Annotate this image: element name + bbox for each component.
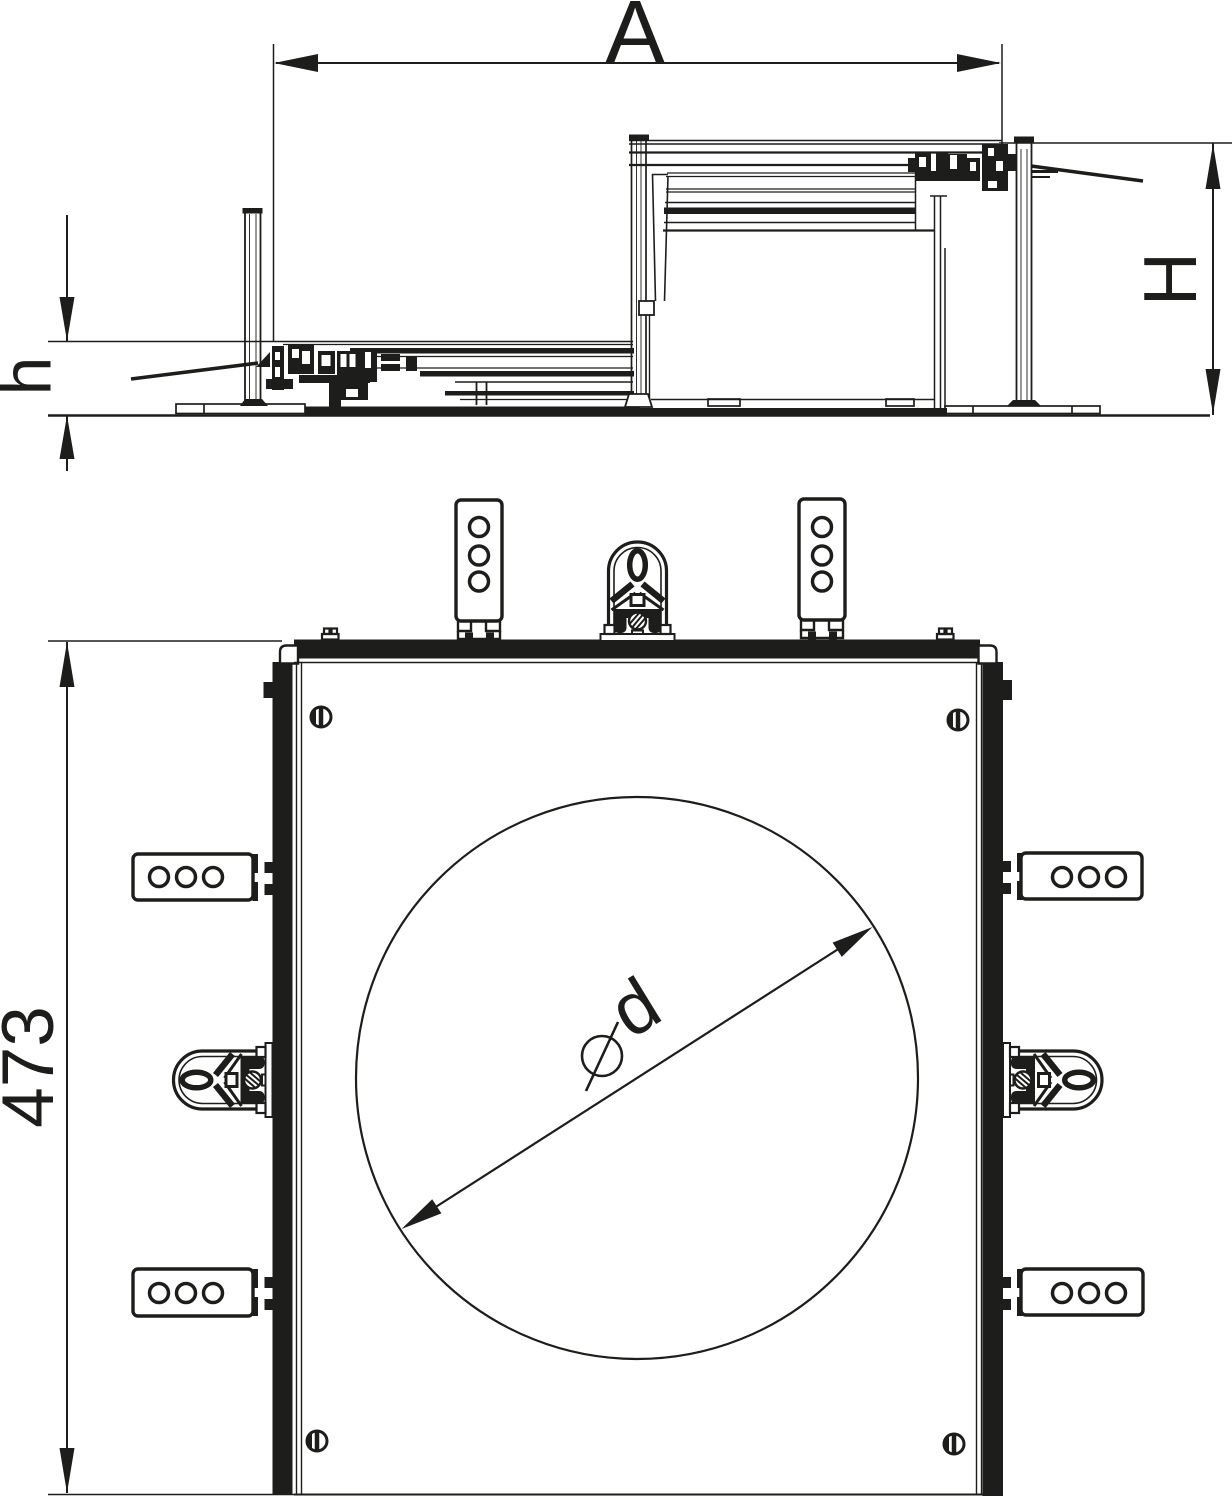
svg-text:A: A bbox=[605, 0, 665, 83]
svg-text:d: d bbox=[595, 961, 673, 1053]
svg-text:473: 473 bbox=[0, 1006, 69, 1128]
svg-text:H: H bbox=[1128, 252, 1212, 306]
svg-text:h: h bbox=[0, 357, 66, 396]
